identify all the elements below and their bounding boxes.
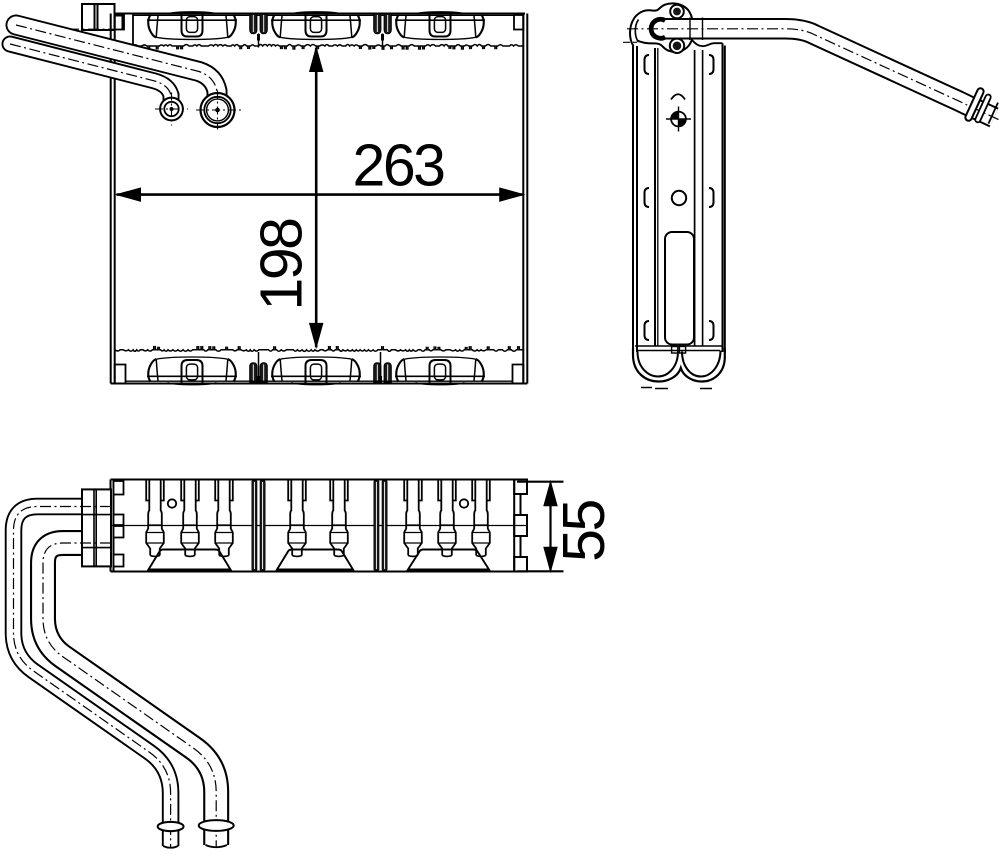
svg-text:198: 198: [249, 219, 315, 311]
svg-text:263: 263: [353, 133, 445, 199]
svg-text:55: 55: [551, 501, 617, 562]
